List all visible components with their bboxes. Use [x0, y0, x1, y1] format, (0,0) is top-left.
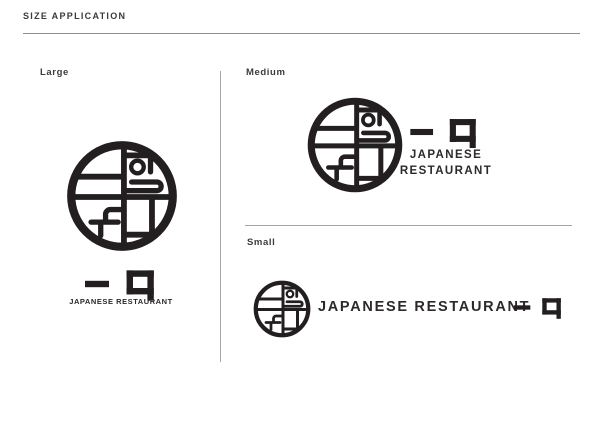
- section-label-small: Small: [247, 237, 275, 248]
- section-label-large: Large: [40, 67, 69, 78]
- header-rule: [23, 33, 580, 34]
- tagline-medium: JAPANESE RESTAURANT: [394, 148, 498, 179]
- medium-small-divider: [245, 225, 572, 226]
- section-label-medium: Medium: [246, 67, 286, 78]
- brand-guideline-page: SIZE APPLICATION Large JAPANESE RESTAURA…: [0, 0, 600, 431]
- tagline-medium-line1: JAPANESE: [394, 148, 498, 164]
- hitokuchi-kanji-icon: [410, 116, 479, 148]
- restaurant-logo-mark-icon: [252, 279, 312, 339]
- column-divider: [220, 71, 221, 362]
- hitokuchi-kanji-icon: [514, 296, 563, 319]
- restaurant-logo-mark-icon: [305, 95, 405, 195]
- page-title: SIZE APPLICATION: [23, 11, 126, 21]
- hitokuchi-kanji-icon: [85, 267, 157, 301]
- tagline-medium-line2: RESTAURANT: [394, 164, 498, 180]
- tagline-small: JAPANESE RESTAURANT: [318, 299, 530, 315]
- tagline-large: JAPANESE RESTAURANT: [51, 297, 191, 306]
- restaurant-logo-mark-icon: [64, 138, 180, 254]
